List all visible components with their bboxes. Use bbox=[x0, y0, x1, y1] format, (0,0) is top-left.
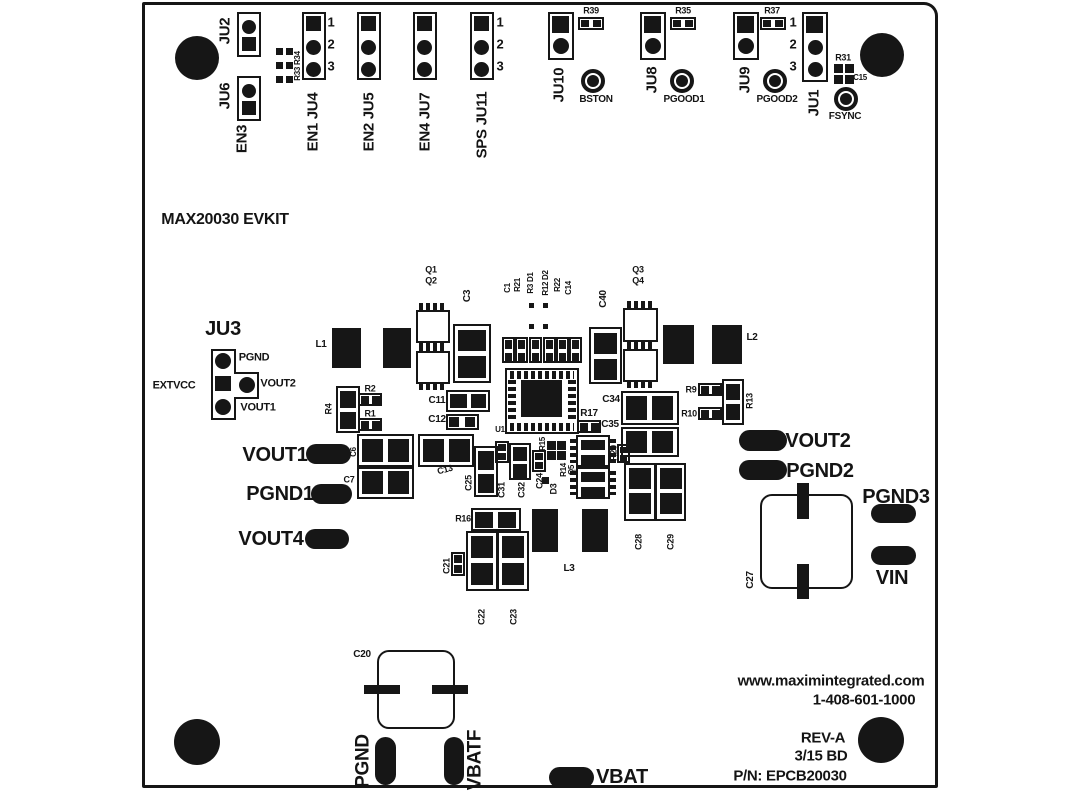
label-r35: R35 bbox=[675, 7, 691, 16]
c24-pad bbox=[535, 462, 543, 469]
label-r17: R17 bbox=[580, 409, 597, 419]
c22-pad bbox=[471, 536, 493, 558]
label-u1: U1 bbox=[495, 426, 505, 434]
label-extvcc: EXTVCC bbox=[153, 381, 196, 392]
label-r16: R16 bbox=[455, 515, 471, 524]
label-ju1-pin1: 1 bbox=[790, 16, 797, 29]
q5-pad bbox=[581, 455, 605, 465]
ju5-pad bbox=[361, 62, 376, 77]
label-c34: C34 bbox=[602, 395, 619, 405]
label-pgnd3: PGND3 bbox=[862, 487, 929, 507]
r37-pad bbox=[763, 20, 771, 27]
r17-pad bbox=[580, 423, 588, 431]
r10-pad bbox=[712, 410, 720, 418]
ju1-pad bbox=[808, 62, 823, 77]
ju5-pad bbox=[361, 16, 376, 31]
label-ju3-pgnd: PGND bbox=[239, 353, 270, 364]
label-vout2: VOUT2 bbox=[785, 431, 850, 451]
ju8-pad bbox=[645, 38, 661, 54]
ju10-pad bbox=[553, 38, 569, 54]
label-c3: C3 bbox=[463, 290, 473, 302]
label-phone: 1-408-601-1000 bbox=[813, 693, 916, 708]
label-r4: R4 bbox=[325, 404, 334, 415]
ju4-pad bbox=[306, 62, 321, 77]
label-ju8: JU8 bbox=[645, 67, 660, 94]
q6-pad bbox=[581, 487, 605, 497]
pgood1-testpoint-center bbox=[676, 75, 688, 87]
label-q5: Q5 bbox=[568, 465, 576, 475]
q4-body bbox=[623, 349, 658, 382]
q1-body bbox=[416, 310, 450, 343]
c1-pad bbox=[505, 340, 512, 349]
l2-pad bbox=[663, 325, 694, 364]
ju10-pad bbox=[552, 16, 569, 33]
c24-pad bbox=[535, 453, 543, 460]
r15-pad bbox=[557, 441, 566, 450]
vbatf-pad bbox=[444, 737, 464, 785]
r39-pad bbox=[581, 20, 589, 27]
vout2-pad bbox=[739, 430, 787, 451]
label-vin: VIN bbox=[876, 568, 908, 588]
ju11-pad bbox=[474, 40, 489, 55]
r4-pad bbox=[340, 391, 356, 408]
label-c25: C25 bbox=[465, 475, 474, 491]
r12-pad bbox=[546, 353, 553, 362]
c34-pad bbox=[626, 396, 647, 420]
label-ju6: JU6 bbox=[218, 83, 233, 110]
label-r15: R15 bbox=[539, 437, 547, 451]
pgnd1-pad bbox=[311, 484, 352, 504]
label-ju2: JU2 bbox=[218, 18, 233, 45]
label-ju11-pin1: 1 bbox=[497, 16, 504, 29]
q6-pad bbox=[581, 472, 605, 482]
c27-pad bbox=[797, 564, 809, 599]
d2-pad bbox=[543, 303, 548, 308]
l3-pad bbox=[582, 509, 608, 552]
label-ju7: EN4 JU7 bbox=[418, 93, 433, 152]
l3-pad bbox=[532, 509, 558, 552]
ju4-pad bbox=[306, 16, 321, 31]
label-ju4-pin3: 3 bbox=[328, 60, 335, 73]
r12-pad bbox=[546, 340, 553, 349]
d1-pad bbox=[529, 324, 534, 329]
c32-pad bbox=[513, 464, 527, 478]
label-r9: R9 bbox=[686, 386, 697, 395]
label-vbat: VBAT bbox=[596, 767, 648, 787]
ju9-pad bbox=[737, 16, 754, 33]
r10-pad bbox=[701, 410, 709, 418]
label-c28: C28 bbox=[635, 534, 644, 550]
label-r13: R13 bbox=[746, 393, 755, 409]
c13-pad bbox=[449, 439, 470, 462]
label-c23: C23 bbox=[510, 609, 519, 625]
pgood2-testpoint-center bbox=[769, 75, 781, 87]
ju11-pad bbox=[474, 62, 489, 77]
ju1-pad bbox=[808, 40, 823, 55]
label-q4: Q4 bbox=[632, 277, 643, 286]
ju11-pad bbox=[474, 16, 489, 31]
q2-body bbox=[416, 351, 450, 384]
label-vout1: VOUT1 bbox=[242, 445, 307, 465]
label-part-number: P/N: EPCB20030 bbox=[733, 769, 846, 784]
label-r3-d1: R3 D1 bbox=[527, 272, 535, 293]
label-r10: R10 bbox=[681, 410, 697, 419]
label-r33-r34: R33 R34 bbox=[294, 51, 302, 80]
c35-pad bbox=[652, 431, 673, 453]
label-pgnd2: PGND2 bbox=[786, 461, 853, 481]
label-ju5: EN2 JU5 bbox=[362, 93, 377, 152]
label-ju1-pin3: 3 bbox=[790, 60, 797, 73]
label-ju9: JU9 bbox=[738, 67, 753, 94]
q3-body bbox=[623, 308, 658, 342]
label-c14: C14 bbox=[565, 281, 573, 295]
label-rev: REV-A bbox=[801, 731, 845, 746]
q4-pins bbox=[627, 342, 655, 349]
ju3-seam bbox=[232, 374, 236, 397]
pcb-silkscreen-drawing: JU2JU6EN3R33 R34EN1 JU4EN2 JU5EN4 JU7SPS… bbox=[0, 0, 1080, 800]
label-c22: C22 bbox=[478, 609, 487, 625]
label-l3: L3 bbox=[563, 564, 574, 574]
label-pgnd1: PGND1 bbox=[246, 484, 313, 504]
label-c20: C20 bbox=[353, 650, 370, 660]
r22-pad bbox=[559, 340, 566, 349]
d2-pad bbox=[543, 324, 548, 329]
label-bston: BSTON bbox=[579, 95, 612, 105]
q3-pins bbox=[627, 301, 655, 308]
c40-pad bbox=[594, 359, 617, 380]
c23-pad bbox=[502, 536, 524, 558]
label-c6: C6 bbox=[350, 447, 358, 457]
c22-pad bbox=[471, 563, 493, 585]
q4-pins bbox=[627, 381, 655, 388]
q2-pins bbox=[419, 383, 447, 390]
vout1-pad bbox=[306, 444, 351, 464]
label-c21: C21 bbox=[443, 558, 452, 574]
label-c1: C1 bbox=[504, 283, 512, 293]
r2-pad bbox=[372, 396, 380, 404]
c14-pad bbox=[572, 340, 579, 349]
ju6-pad bbox=[242, 84, 256, 98]
c11-pad bbox=[450, 394, 467, 408]
c28-pad bbox=[629, 468, 651, 489]
c7-pad bbox=[362, 471, 383, 494]
label-c15: C15 bbox=[853, 74, 867, 82]
c12-pad bbox=[449, 417, 459, 427]
c29-pad bbox=[660, 468, 682, 489]
label-c12: C12 bbox=[428, 415, 445, 425]
r4-pad bbox=[340, 412, 356, 429]
label-vbatf: VBATF bbox=[466, 730, 485, 790]
d1-pad bbox=[529, 303, 534, 308]
c12-pad bbox=[465, 417, 475, 427]
r20-pad bbox=[620, 447, 627, 453]
l1-pad bbox=[332, 328, 361, 368]
label-c31: C31 bbox=[498, 482, 507, 498]
label-ju3: JU3 bbox=[205, 319, 241, 339]
c40-pad bbox=[594, 333, 617, 354]
label-en3: EN3 bbox=[235, 125, 250, 153]
label-q3: Q3 bbox=[632, 266, 643, 275]
ju7-pad bbox=[417, 16, 432, 31]
ju8-pad bbox=[644, 16, 661, 33]
fsync-testpoint-center bbox=[840, 93, 852, 105]
label-pgood1: PGOOD1 bbox=[664, 95, 705, 105]
label-c29: C29 bbox=[667, 534, 676, 550]
c3-pad bbox=[458, 330, 486, 351]
ju2-pad bbox=[242, 20, 256, 34]
ju7-pad bbox=[417, 62, 432, 77]
label-d3: D3 bbox=[550, 484, 559, 495]
label-r12-d2: R12 D2 bbox=[542, 270, 550, 295]
q1-pins bbox=[419, 303, 447, 310]
ju3-pad-vout1 bbox=[215, 399, 231, 415]
c13-pad bbox=[423, 439, 444, 462]
label-ju1: JU1 bbox=[807, 90, 822, 117]
r16-pad bbox=[498, 512, 516, 528]
c6-pad bbox=[388, 439, 409, 462]
label-r31: R31 bbox=[835, 54, 851, 63]
r31-pad bbox=[845, 64, 854, 73]
c27-pad bbox=[797, 483, 809, 519]
label-pgood2: PGOOD2 bbox=[757, 95, 798, 105]
label-fsync: FSYNC bbox=[829, 112, 861, 122]
label-ju3-vout2: VOUT2 bbox=[260, 379, 295, 390]
r34-pad bbox=[286, 48, 293, 55]
c3-pad bbox=[458, 356, 486, 378]
label-r21: R21 bbox=[514, 278, 522, 292]
label-l2: L2 bbox=[746, 333, 757, 343]
r15-pad bbox=[547, 441, 556, 450]
r34-pad bbox=[286, 76, 293, 83]
vin-pad bbox=[871, 546, 916, 565]
label-ju11-pin2: 2 bbox=[497, 38, 504, 51]
c28-pad bbox=[629, 493, 651, 514]
label-ju11-pin3: 3 bbox=[497, 60, 504, 73]
r9-pad bbox=[701, 386, 709, 394]
ju4-pad bbox=[306, 40, 321, 55]
ju3-pad-vout2 bbox=[239, 377, 255, 393]
label-c27: C27 bbox=[746, 571, 756, 588]
c23-pad bbox=[502, 563, 524, 585]
label-c32: C32 bbox=[518, 482, 527, 498]
q2-pins bbox=[419, 344, 447, 351]
label-c24: C24 bbox=[536, 473, 545, 489]
label-l1: L1 bbox=[315, 340, 326, 350]
c20-pad bbox=[364, 685, 400, 694]
c14-pad bbox=[572, 353, 579, 362]
r33-pad bbox=[276, 76, 283, 83]
c6-pad bbox=[362, 439, 383, 462]
pgnd2-pad bbox=[739, 460, 787, 480]
label-c11: C11 bbox=[429, 396, 446, 406]
label-r22: R22 bbox=[554, 278, 562, 292]
label-c40: C40 bbox=[599, 290, 609, 307]
q5-pad bbox=[581, 440, 605, 450]
r15-pad bbox=[557, 451, 566, 460]
label-ju11: SPS JU11 bbox=[475, 92, 490, 159]
r1-pad bbox=[361, 421, 369, 429]
label-pgnd: PGND bbox=[354, 734, 373, 788]
r3-pad bbox=[532, 353, 539, 362]
c31-pad bbox=[498, 444, 506, 451]
label-r20: R20 bbox=[610, 445, 619, 461]
c21-pad bbox=[454, 555, 462, 563]
ju1-pad bbox=[806, 16, 823, 33]
label-rev-date: 3/15 BD bbox=[795, 749, 848, 764]
label-r1: R1 bbox=[365, 410, 376, 419]
c29-pad bbox=[660, 493, 682, 514]
label-website: www.maximintegrated.com bbox=[738, 674, 925, 689]
r17-pad bbox=[591, 423, 599, 431]
r33-pad bbox=[276, 48, 283, 55]
r3-pad bbox=[532, 340, 539, 349]
pgnd-pad bbox=[375, 737, 396, 785]
label-q1: Q1 bbox=[425, 266, 436, 275]
label-ju3-vout1: VOUT1 bbox=[240, 403, 275, 414]
ju3-pad-extvcc bbox=[215, 376, 231, 391]
r35-pad bbox=[685, 20, 693, 27]
r13-pad bbox=[726, 404, 740, 420]
r21-pad bbox=[518, 340, 525, 349]
r34-pad bbox=[286, 62, 293, 69]
r13-pad bbox=[726, 384, 740, 400]
label-ju10: JU10 bbox=[552, 68, 567, 103]
label-r2: R2 bbox=[365, 385, 376, 394]
c32-pad bbox=[513, 447, 527, 461]
c1-pad bbox=[505, 353, 512, 362]
r33-pad bbox=[276, 62, 283, 69]
l1-pad bbox=[383, 328, 411, 368]
bston-testpoint-center bbox=[587, 75, 599, 87]
c31-pad bbox=[498, 453, 506, 460]
q6-pins bbox=[609, 471, 616, 495]
ju6-pad bbox=[242, 101, 256, 115]
board-title: MAX20030 EVKIT bbox=[161, 212, 288, 228]
r16-pad bbox=[475, 512, 493, 528]
ju5-pad bbox=[361, 40, 376, 55]
ju3-pad-pgnd bbox=[215, 353, 231, 369]
ju7-pad bbox=[417, 40, 432, 55]
r1-pad bbox=[372, 421, 380, 429]
c25-pad bbox=[478, 474, 494, 493]
label-ju4: EN1 JU4 bbox=[306, 93, 321, 152]
u1-die bbox=[521, 380, 562, 417]
label-r39: R39 bbox=[583, 7, 599, 16]
c25-pad bbox=[478, 451, 494, 470]
label-c35: C35 bbox=[601, 420, 618, 430]
label-q2: Q2 bbox=[425, 277, 436, 286]
r2-pad bbox=[361, 396, 369, 404]
ju9-pad bbox=[738, 38, 754, 54]
vout4-pad bbox=[305, 529, 349, 549]
c7-pad bbox=[388, 471, 409, 494]
r22-pad bbox=[559, 353, 566, 362]
r37-pad bbox=[775, 20, 783, 27]
ju2-pad bbox=[242, 37, 256, 51]
r20-pad bbox=[620, 455, 627, 461]
label-ju1-pin2: 2 bbox=[790, 38, 797, 51]
c21-pad bbox=[454, 565, 462, 573]
l2-pad bbox=[712, 325, 742, 364]
r9-pad bbox=[712, 386, 720, 394]
label-ju4-pin2: 2 bbox=[328, 38, 335, 51]
c11-pad bbox=[471, 394, 486, 408]
label-ju4-pin1: 1 bbox=[328, 16, 335, 29]
r39-pad bbox=[593, 20, 601, 27]
label-vout4: VOUT4 bbox=[238, 529, 303, 549]
label-r37: R37 bbox=[764, 7, 780, 16]
r31-pad bbox=[834, 75, 843, 84]
r31-pad bbox=[834, 64, 843, 73]
r21-pad bbox=[518, 353, 525, 362]
vbat-pad bbox=[549, 767, 594, 788]
r15-pad bbox=[547, 451, 556, 460]
c34-pad bbox=[652, 396, 673, 420]
c20-pad bbox=[432, 685, 468, 694]
r35-pad bbox=[673, 20, 681, 27]
label-c7: C7 bbox=[344, 476, 355, 485]
